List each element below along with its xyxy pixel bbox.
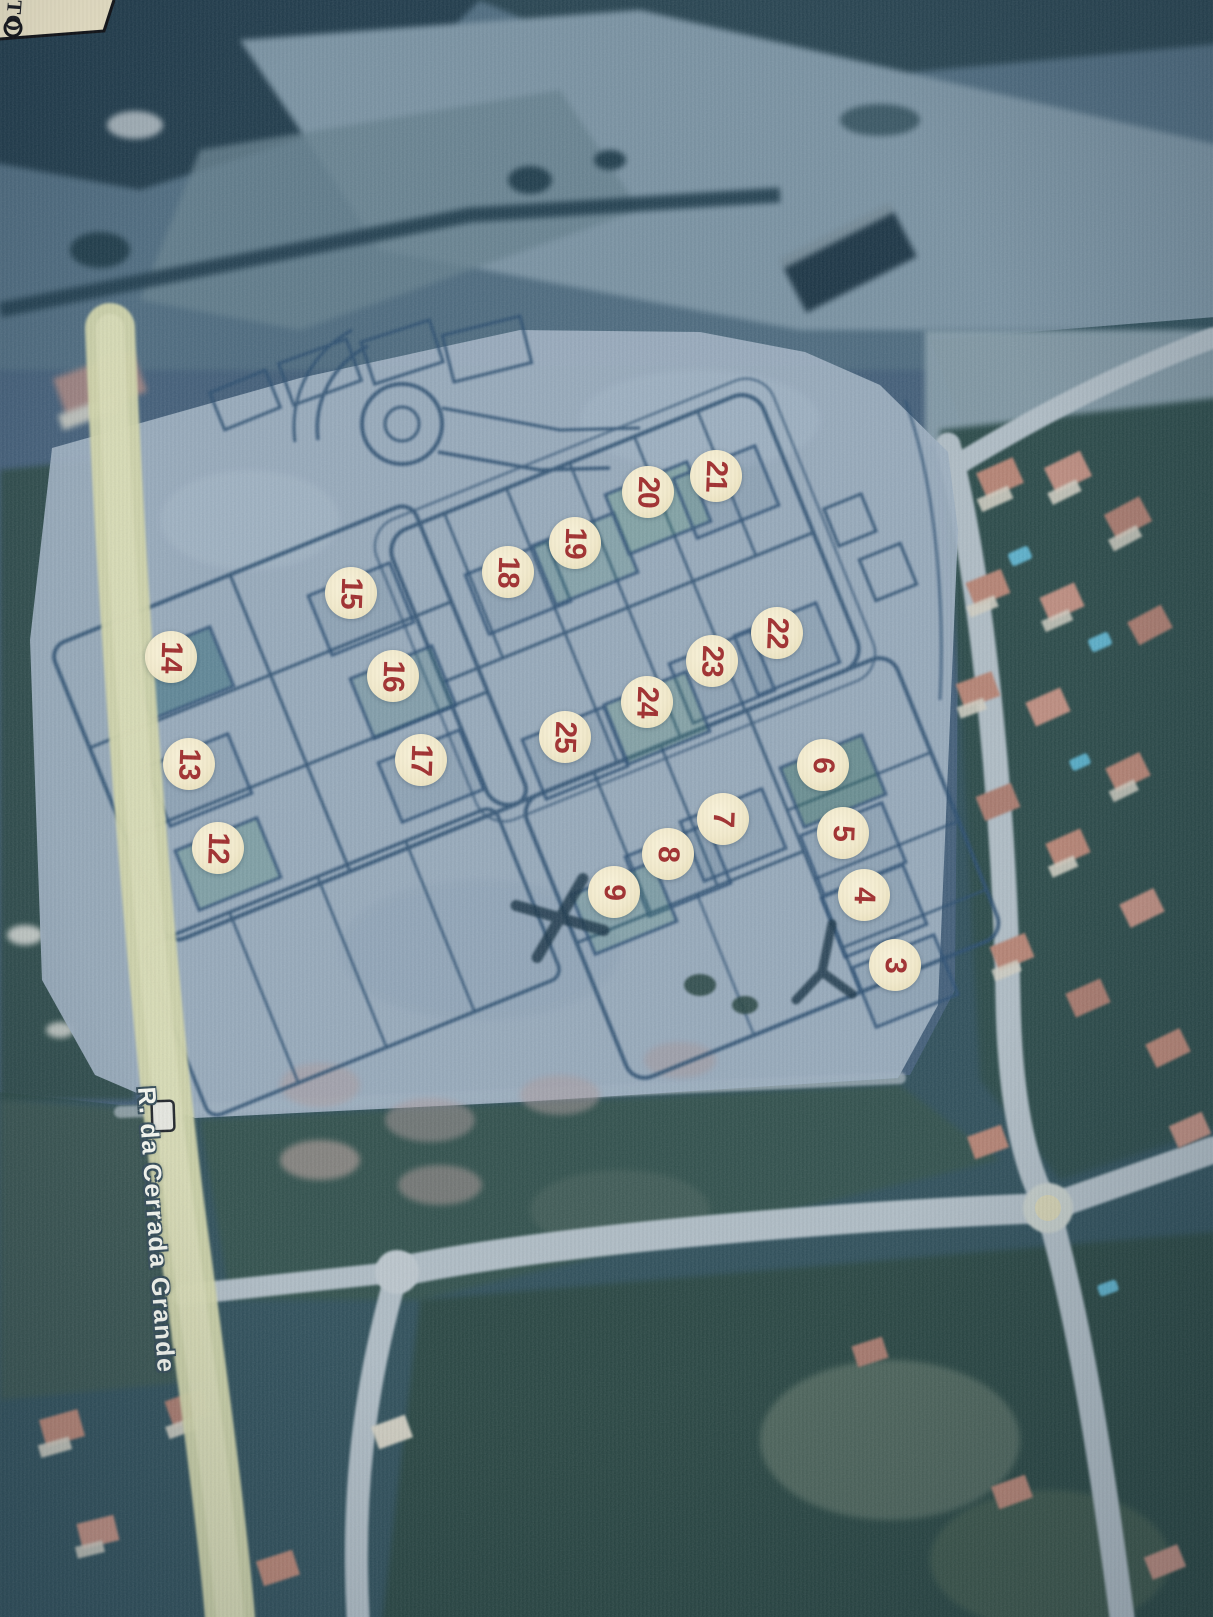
lot-markers-layer: 34567891213141516171819202122232425 xyxy=(0,0,1213,1617)
lot-marker-number: 24 xyxy=(631,686,662,718)
lot-marker-number: 13 xyxy=(173,748,204,780)
lot-marker-number: 7 xyxy=(708,811,739,828)
lot-marker-number: 6 xyxy=(808,757,839,774)
lot-marker-number: 15 xyxy=(335,577,366,609)
aerial-map-photo: R. da Cerrada Grande 3456789121314151617… xyxy=(0,0,1213,1617)
lot-marker-12: 12 xyxy=(192,822,244,874)
lot-marker-20: 20 xyxy=(622,466,674,518)
lot-marker-8: 8 xyxy=(642,828,694,880)
lot-marker-number: 12 xyxy=(202,832,233,864)
lot-marker-number: 5 xyxy=(828,825,859,842)
lot-marker-number: 23 xyxy=(696,645,727,677)
lot-marker-19: 19 xyxy=(549,517,601,569)
lot-marker-number: 14 xyxy=(155,641,186,673)
lot-marker-number: 18 xyxy=(492,556,523,588)
lot-marker-15: 15 xyxy=(325,567,377,619)
lot-marker-21: 21 xyxy=(690,450,742,502)
lot-marker-16: 16 xyxy=(367,650,419,702)
lot-marker-14: 14 xyxy=(145,631,197,683)
lot-marker-23: 23 xyxy=(686,635,738,687)
lot-marker-number: 16 xyxy=(377,660,408,692)
lot-marker-3: 3 xyxy=(869,939,921,991)
page-corner-note: TO xyxy=(0,0,150,80)
lot-marker-number: 3 xyxy=(880,957,911,974)
tree-glow xyxy=(852,932,936,1016)
tree-glow xyxy=(821,862,905,946)
lot-marker-number: 21 xyxy=(700,460,731,492)
lot-marker-5: 5 xyxy=(817,807,869,859)
lot-marker-number: 25 xyxy=(549,721,580,753)
lot-marker-number: 9 xyxy=(599,884,630,901)
lot-marker-6: 6 xyxy=(797,739,849,791)
lot-marker-25: 25 xyxy=(539,711,591,763)
lot-marker-number: 20 xyxy=(632,476,663,508)
lot-marker-22: 22 xyxy=(751,607,803,659)
tree-glow xyxy=(571,859,655,943)
lot-marker-17: 17 xyxy=(395,734,447,786)
tree-glow xyxy=(780,732,864,816)
page-corner-text: TO xyxy=(0,0,27,33)
lot-marker-9: 9 xyxy=(588,866,640,918)
lot-marker-13: 13 xyxy=(163,738,215,790)
lot-marker-number: 22 xyxy=(761,617,792,649)
lot-marker-number: 4 xyxy=(849,887,880,904)
lot-marker-number: 19 xyxy=(559,527,590,559)
lot-marker-number: 17 xyxy=(405,744,436,776)
lot-marker-4: 4 xyxy=(838,869,890,921)
lot-marker-number: 8 xyxy=(653,846,684,863)
lot-marker-7: 7 xyxy=(697,793,749,845)
lot-marker-24: 24 xyxy=(621,676,673,728)
lot-marker-18: 18 xyxy=(482,546,534,598)
